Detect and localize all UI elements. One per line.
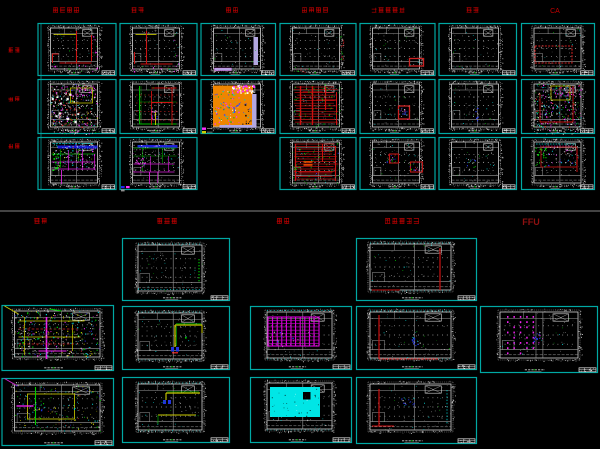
svg-text:FFU: FFU (522, 217, 540, 227)
svg-text:CA: CA (550, 8, 560, 15)
